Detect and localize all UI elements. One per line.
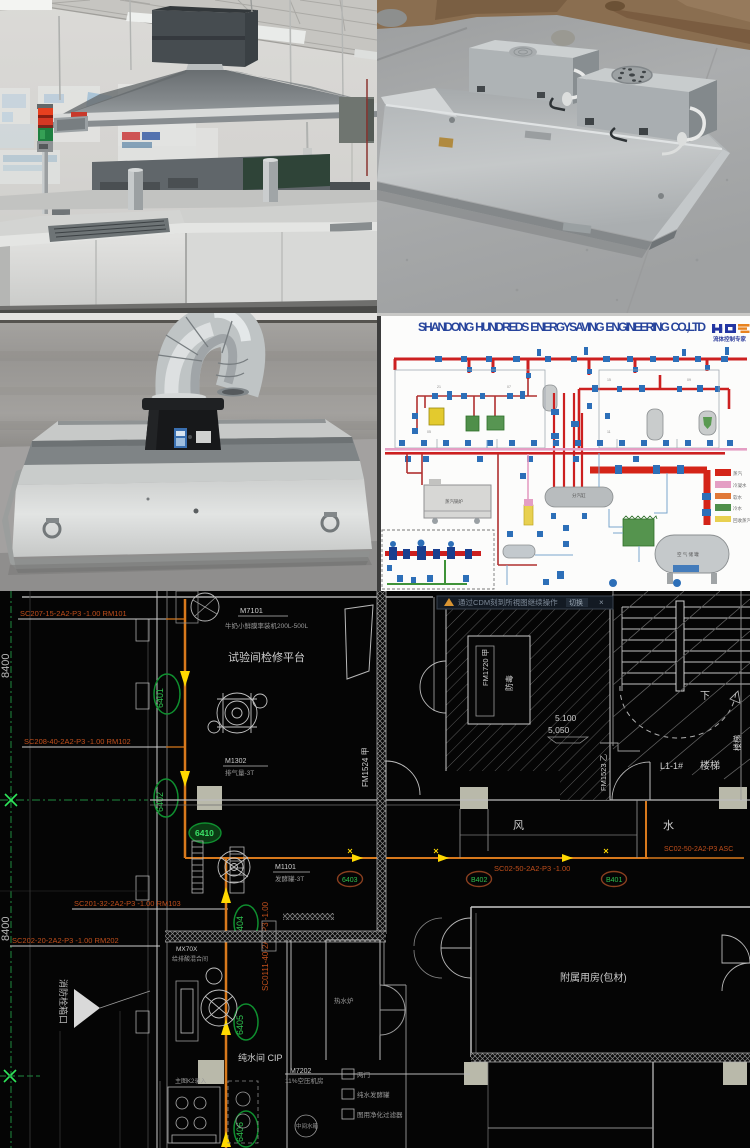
- svg-text:主图K2录入: 主图K2录入: [175, 1077, 206, 1085]
- svg-text:5,050: 5,050: [548, 725, 570, 735]
- svg-text:SC02-50-2A2-P3 ASC: SC02-50-2A2-P3 ASC: [664, 846, 733, 853]
- svg-text:M7101: M7101: [240, 606, 263, 615]
- svg-text:MX70X: MX70X: [176, 946, 198, 953]
- svg-text:图用净化过滤器: 图用净化过滤器: [357, 1110, 403, 1119]
- svg-text:两门: 两门: [357, 1070, 370, 1079]
- svg-text:给排酸混合间: 给排酸混合间: [172, 955, 208, 963]
- svg-text:蒸汽: 蒸汽: [733, 470, 742, 477]
- svg-text:6401: 6401: [155, 688, 165, 708]
- svg-text:M7202: M7202: [290, 1068, 312, 1075]
- svg-text:SC207-15-2A2-P3 -1.00 RM101: SC207-15-2A2-P3 -1.00 RM101: [20, 609, 127, 618]
- svg-text:SC201-32-2A2-P3 -1.00 RM103: SC201-32-2A2-P3 -1.00 RM103: [74, 899, 181, 908]
- svg-text:蒸汽锅炉: 蒸汽锅炉: [445, 498, 463, 505]
- svg-text:水: 水: [663, 819, 674, 832]
- svg-text:B402: B402: [471, 877, 487, 884]
- svg-text:8400: 8400: [0, 917, 12, 941]
- svg-text:6402: 6402: [155, 792, 165, 812]
- svg-text:11%空压机房: 11%空压机房: [285, 1076, 324, 1085]
- svg-text:09: 09: [687, 378, 691, 382]
- svg-text:楼梯: 楼梯: [700, 759, 720, 772]
- svg-text:冷水: 冷水: [733, 505, 742, 512]
- svg-text:附属用房(包材): 附属用房(包材): [560, 971, 627, 984]
- svg-text:SC202-20-2A2-P3 -1.00 RM202: SC202-20-2A2-P3 -1.00 RM202: [12, 936, 119, 945]
- svg-text:下: 下: [700, 691, 710, 702]
- svg-text:05: 05: [427, 430, 431, 434]
- svg-text:发酵罐-3T: 发酵罐-3T: [275, 874, 304, 883]
- svg-text:FM1523 乙: FM1523 乙: [599, 753, 608, 791]
- svg-text:×: ×: [599, 598, 604, 607]
- svg-text:中间水箱: 中间水箱: [296, 1122, 319, 1130]
- svg-text:楼梯: 楼梯: [732, 735, 742, 751]
- svg-text:L1-1#: L1-1#: [660, 761, 683, 771]
- svg-text:切换: 切换: [569, 598, 583, 607]
- svg-text:回收蒸汽: 回收蒸汽: [733, 517, 750, 524]
- svg-text:FM1720 甲: FM1720 甲: [481, 649, 490, 686]
- svg-text:通过CDM刻到所視图继续操作: 通过CDM刻到所視图继续操作: [458, 597, 558, 607]
- svg-text:冷凝水: 冷凝水: [733, 482, 747, 489]
- svg-text:6405: 6405: [235, 1015, 245, 1035]
- svg-text:纯水间 CIP: 纯水间 CIP: [238, 1052, 283, 1063]
- svg-text:防毒: 防毒: [504, 675, 514, 691]
- svg-text:15: 15: [607, 378, 611, 382]
- svg-text:SC208-40-2A2-P3 -1.00 RM102: SC208-40-2A2-P3 -1.00 RM102: [24, 737, 131, 746]
- svg-text:FM1524 甲: FM1524 甲: [361, 747, 370, 787]
- svg-text:SHANDONG HUNDREDS ENERGYSAVI: SHANDONG HUNDREDS ENERGYSAVING ENGINEERI…: [418, 320, 706, 334]
- svg-text:消防栓箱口: 消防栓箱口: [58, 979, 69, 1024]
- svg-text:6410: 6410: [195, 828, 214, 838]
- svg-text:5.100: 5.100: [555, 713, 577, 723]
- svg-text:6406: 6406: [235, 1122, 245, 1142]
- svg-text:B401: B401: [606, 877, 622, 884]
- svg-text:21: 21: [437, 385, 441, 389]
- svg-text:排气量-3T: 排气量-3T: [225, 768, 254, 777]
- svg-text:空 气 储 罐: 空 气 储 罐: [677, 551, 699, 558]
- svg-text:07: 07: [507, 385, 511, 389]
- svg-text:风: 风: [513, 819, 524, 832]
- svg-text:纯水发酵罐: 纯水发酵罐: [357, 1090, 390, 1099]
- svg-text:热水炉: 热水炉: [334, 996, 354, 1005]
- svg-text:流体控制专家: 流体控制专家: [713, 335, 747, 343]
- svg-text:M1302: M1302: [225, 758, 247, 765]
- svg-text:M1101: M1101: [275, 864, 296, 871]
- svg-text:8400: 8400: [0, 654, 12, 678]
- svg-text:软水: 软水: [733, 494, 742, 501]
- svg-text:6403: 6403: [342, 877, 358, 884]
- svg-text:11: 11: [607, 430, 611, 434]
- svg-text:SC02-50-2A2-P3 -1.00: SC02-50-2A2-P3 -1.00: [494, 864, 570, 873]
- svg-text:试验间检修平台: 试验间检修平台: [228, 650, 305, 664]
- svg-text:分汽缸: 分汽缸: [572, 492, 586, 499]
- svg-text:牛奶小鲜膜率装机200L-500L: 牛奶小鲜膜率装机200L-500L: [225, 621, 308, 630]
